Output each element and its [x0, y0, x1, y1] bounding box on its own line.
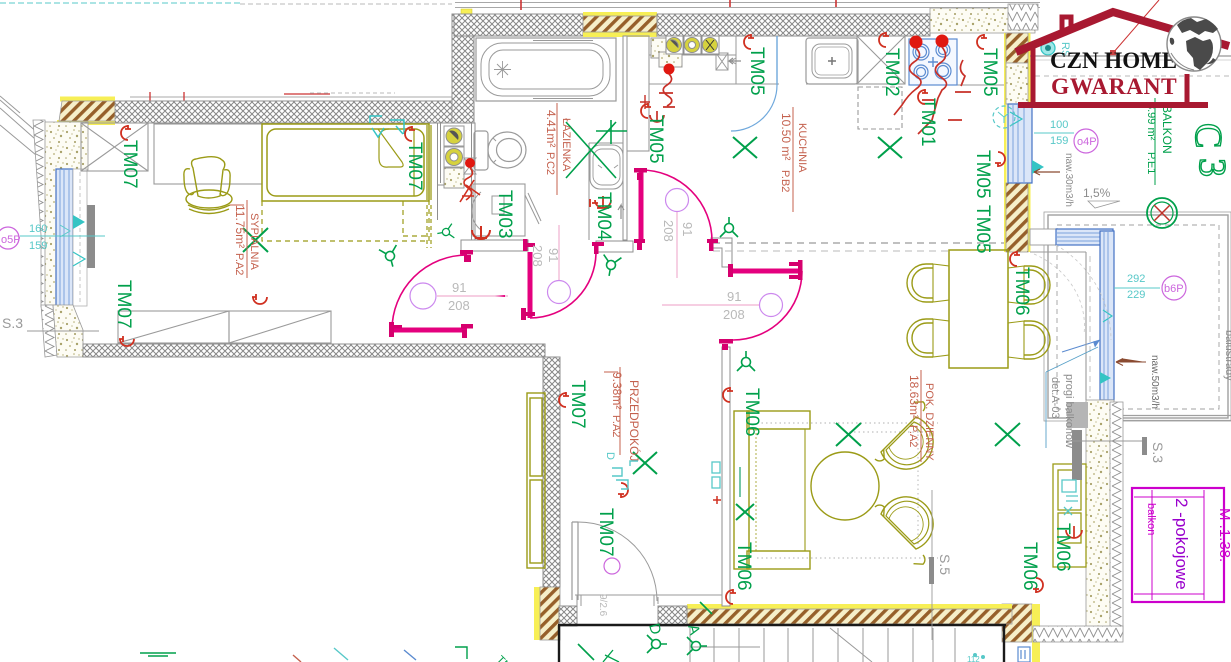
svg-text:TM05: TM05: [972, 205, 993, 254]
svg-text:TM06: TM06: [1019, 542, 1040, 591]
svg-text:TM06: TM06: [733, 542, 754, 591]
svg-text:GWARANT: GWARANT: [1051, 74, 1177, 100]
svg-text:PRZEDPOKÓJ: PRZEDPOKÓJ: [627, 380, 642, 461]
svg-text:TM05: TM05: [645, 115, 666, 164]
svg-text:TM05: TM05: [746, 47, 767, 96]
svg-text:TM03: TM03: [494, 190, 515, 239]
svg-text:292: 292: [1127, 273, 1145, 285]
svg-text:1,5%: 1,5%: [1083, 186, 1111, 200]
svg-text:9/2.6: 9/2.6: [597, 594, 608, 617]
svg-text:BALKON: BALKON: [1160, 105, 1174, 154]
svg-text:naw.30m3/h: naw.30m3/h: [1063, 153, 1074, 207]
svg-text:CZN HOME: CZN HOME: [1050, 48, 1177, 73]
svg-text:o5P: o5P: [1, 234, 21, 246]
svg-text:naw.50m3/h: naw.50m3/h: [1149, 355, 1160, 409]
svg-text:P.B2: P.B2: [779, 170, 791, 192]
svg-text:10.50 m²: 10.50 m²: [779, 113, 793, 160]
svg-text:S.3: S.3: [1150, 442, 1166, 463]
svg-text:SYPIALNIA: SYPIALNIA: [248, 213, 260, 271]
svg-text:TM01: TM01: [917, 98, 938, 147]
svg-text:112: 112: [967, 655, 980, 662]
svg-text:S.3: S.3: [2, 315, 23, 331]
svg-text:2 -pokojowe: 2 -pokojowe: [1172, 498, 1191, 590]
svg-text:TM07: TM07: [113, 280, 134, 329]
svg-text:TM05: TM05: [979, 48, 1000, 97]
svg-text:TM07: TM07: [404, 142, 425, 191]
svg-text:208: 208: [661, 220, 676, 242]
svg-text:det.A-03: det.A-03: [1049, 377, 1061, 419]
svg-text:100: 100: [1050, 119, 1068, 131]
svg-text:progi balkonów: progi balkonów: [1063, 374, 1075, 448]
svg-text:91: 91: [727, 289, 741, 304]
svg-text:TM: TM: [494, 654, 514, 662]
svg-text:S.5: S.5: [937, 554, 953, 575]
svg-text:4.41m²: 4.41m²: [544, 110, 558, 147]
svg-text:TM07: TM07: [567, 380, 588, 429]
svg-text:ŁAZIENKA: ŁAZIENKA: [560, 118, 572, 172]
svg-text:M .1.38.: M .1.38.: [1216, 508, 1231, 562]
svg-text:TM05: TM05: [972, 150, 993, 199]
svg-text:P.C2: P.C2: [544, 152, 556, 175]
svg-text:9.38m²: 9.38m²: [610, 372, 624, 409]
svg-text:3: 3: [1191, 158, 1231, 177]
svg-text:91: 91: [452, 280, 466, 295]
svg-text:159: 159: [1050, 135, 1068, 147]
svg-text:POK. DZIENNY: POK. DZIENNY: [923, 383, 935, 461]
svg-text:229: 229: [1127, 289, 1145, 301]
svg-text:159: 159: [29, 240, 47, 252]
svg-text:208: 208: [723, 307, 745, 322]
svg-text:TM07: TM07: [595, 508, 616, 557]
svg-text:TM06: TM06: [741, 388, 762, 437]
svg-text:balkon: balkon: [1145, 503, 1157, 535]
svg-text:91: 91: [680, 222, 695, 236]
svg-text:91: 91: [546, 248, 561, 262]
svg-text:18.63m²: 18.63m²: [907, 375, 921, 419]
svg-text:TM06: TM06: [1011, 267, 1032, 316]
svg-text:208: 208: [530, 245, 545, 267]
svg-text:11.75m²: 11.75m²: [233, 205, 247, 248]
svg-text:P.A2: P.A2: [907, 425, 919, 447]
svg-text:balustrady: balustrady: [1223, 330, 1231, 381]
svg-text:TM07: TM07: [119, 140, 140, 189]
svg-text:b6P: b6P: [1164, 283, 1184, 295]
svg-text:TM06: TM06: [1052, 523, 1073, 572]
svg-text:TM02: TM02: [881, 48, 902, 97]
svg-text:TM04: TM04: [593, 192, 614, 241]
svg-text:208: 208: [448, 298, 470, 313]
svg-text:KUCHNIA: KUCHNIA: [796, 123, 808, 173]
svg-text:D: D: [604, 452, 616, 460]
svg-text:P.A2: P.A2: [233, 253, 245, 275]
svg-text:o4P: o4P: [1077, 136, 1097, 148]
svg-text:160: 160: [29, 223, 47, 235]
svg-text:C: C: [1187, 123, 1229, 148]
